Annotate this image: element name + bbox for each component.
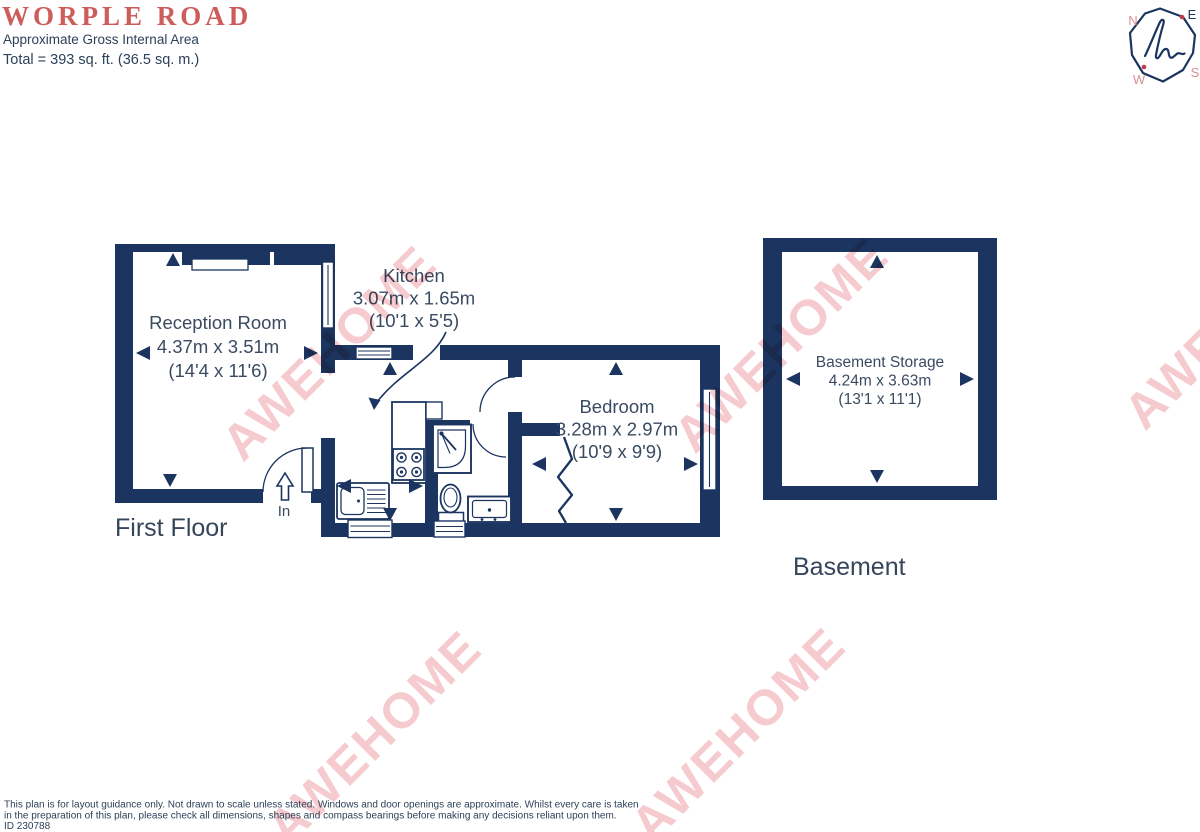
bedroom-name: Bedroom [579, 396, 654, 417]
entry-door-leaf [302, 448, 313, 492]
first-floor-label: First Floor [115, 514, 228, 542]
basement-storage-metric: 4.24m x 3.63m [829, 373, 932, 390]
basement-storage-imperial: (13'1 x 11'1) [838, 391, 921, 408]
reception-name: Reception Room [149, 312, 287, 333]
basement-storage-label: Basement Storage 4.24m x 3.63m (13'1 x 1… [816, 354, 944, 408]
kitchen-pointer-arrow [369, 332, 447, 410]
basement-storage-name: Basement Storage [816, 354, 944, 371]
bedroom-label: Bedroom 3.28m x 2.97m (10'9 x 9'9) [556, 396, 678, 462]
basin-icon [468, 497, 511, 523]
bedroom-door-arc [480, 377, 515, 412]
entry-door [263, 448, 313, 500]
header: WORPLE ROAD Approximate Gross Internal A… [2, 1, 252, 68]
compass-south-label: S [1191, 65, 1200, 80]
page-title: WORPLE ROAD [2, 1, 252, 31]
hob-icon [393, 449, 424, 480]
basement-label: Basement [793, 553, 906, 581]
compass-east-dot-icon [1180, 15, 1185, 20]
disclaimer-line-1: This plan is for layout guidance only. N… [4, 800, 639, 811]
compass-west-dot-icon [1142, 65, 1147, 70]
bedroom-metric: 3.28m x 2.97m [556, 419, 678, 440]
bathroom-fixtures [433, 425, 511, 538]
reception-metric: 4.37m x 3.51m [157, 336, 279, 357]
shower-icon [433, 425, 471, 474]
folding-door-zigzag [558, 437, 572, 523]
reception-imperial: (14'4 x 11'6) [168, 360, 267, 381]
bathroom-door-arc [473, 424, 506, 457]
area-subtitle: Approximate Gross Internal Area [3, 32, 199, 47]
watermark: AWEHOME [620, 617, 856, 832]
compass-north-label: N [1128, 13, 1137, 28]
plan-id: ID 230788 [4, 821, 51, 832]
entrance-label: In [278, 503, 291, 520]
toilet-icon [434, 485, 465, 538]
fireplace-hearth [192, 259, 248, 270]
entry-arrow-icon [277, 473, 293, 500]
watermark: AWEHOME [1113, 204, 1200, 440]
bedroom-imperial: (10'9 x 9'9) [572, 441, 662, 462]
kitchen-counter-corner [426, 402, 442, 419]
compass-east-label: E [1188, 7, 1197, 22]
compass: N E S W [1128, 7, 1199, 87]
compass-west-label: W [1133, 72, 1146, 87]
disclaimer-line-2: in the preparation of this plan, please … [4, 811, 617, 822]
floorplan-svg: WORPLE ROAD Approximate Gross Internal A… [0, 0, 1200, 832]
total-area: Total = 393 sq. ft. (36.5 sq. m.) [3, 52, 199, 68]
floorplan-page: WORPLE ROAD Approximate Gross Internal A… [0, 0, 1200, 832]
reception-room-label: Reception Room 4.37m x 3.51m (14'4 x 11'… [149, 312, 287, 381]
appliance-icon [348, 520, 392, 538]
compass-script-h-icon [1145, 20, 1185, 58]
